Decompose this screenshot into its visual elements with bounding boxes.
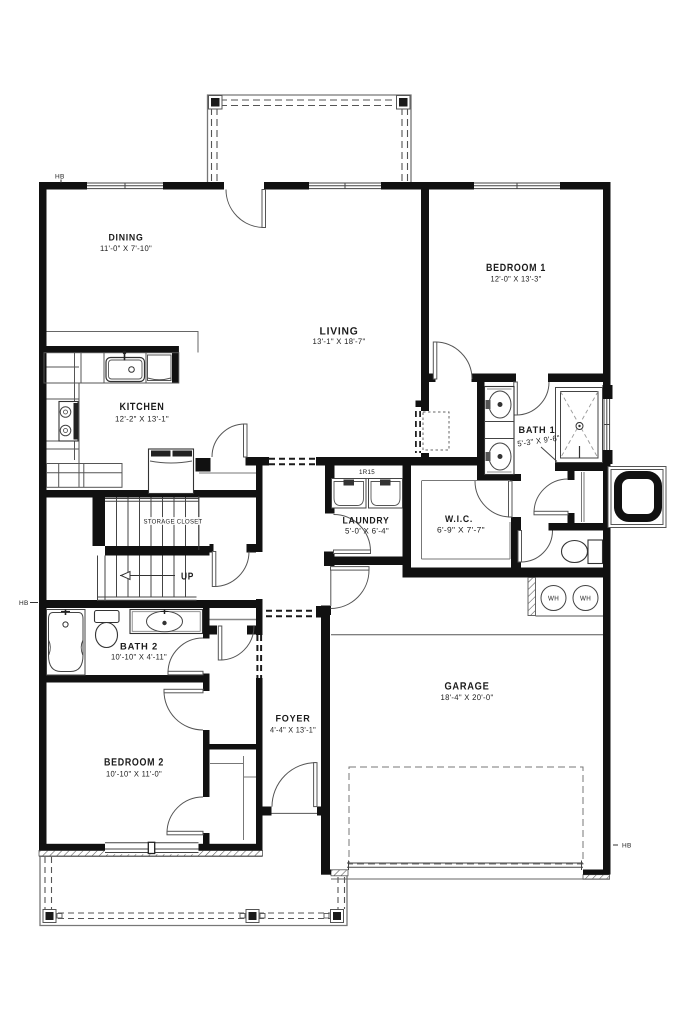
svg-text:W.I.C.: W.I.C.	[445, 514, 473, 525]
svg-text:11'-0" X 7'-10": 11'-0" X 7'-10"	[100, 244, 152, 253]
svg-text:STORAGE CLOSET: STORAGE CLOSET	[144, 519, 203, 526]
svg-text:BEDROOM 2: BEDROOM 2	[104, 757, 164, 769]
svg-text:GARAGE: GARAGE	[445, 681, 490, 693]
svg-text:18'-4" X 20'-0": 18'-4" X 20'-0"	[441, 693, 494, 702]
svg-text:HB: HB	[55, 174, 65, 181]
svg-text:12'-2" X 13'-1": 12'-2" X 13'-1"	[115, 415, 169, 424]
svg-text:10'-10" X 11'-0": 10'-10" X 11'-0"	[106, 770, 162, 779]
svg-text:LAUNDRY: LAUNDRY	[343, 516, 390, 527]
svg-text:10'-10" X 4'-11": 10'-10" X 4'-11"	[111, 653, 167, 662]
svg-text:BATH 2: BATH 2	[120, 642, 158, 653]
svg-text:UP: UP	[181, 572, 194, 583]
svg-text:HB: HB	[19, 600, 29, 607]
svg-text:5'-0' X 6'-4": 5'-0' X 6'-4"	[345, 527, 389, 536]
svg-text:KITCHEN: KITCHEN	[120, 401, 165, 413]
svg-text:WH: WH	[580, 596, 591, 603]
svg-text:WH: WH	[548, 596, 559, 603]
svg-text:1R15: 1R15	[359, 469, 375, 476]
svg-text:4'-4" X 13'-1": 4'-4" X 13'-1"	[270, 726, 316, 735]
svg-text:13'-1" X 18'-7": 13'-1" X 18'-7"	[313, 337, 366, 346]
svg-text:FOYER: FOYER	[276, 714, 311, 725]
svg-text:DINING: DINING	[109, 233, 144, 244]
svg-text:HB: HB	[622, 843, 632, 850]
svg-text:6'-9" X 7'-7": 6'-9" X 7'-7"	[437, 526, 485, 535]
svg-text:12'-0" X 13'-3": 12'-0" X 13'-3"	[491, 275, 542, 284]
svg-text:BEDROOM 1: BEDROOM 1	[486, 262, 546, 274]
svg-text:LIVING: LIVING	[320, 326, 359, 338]
